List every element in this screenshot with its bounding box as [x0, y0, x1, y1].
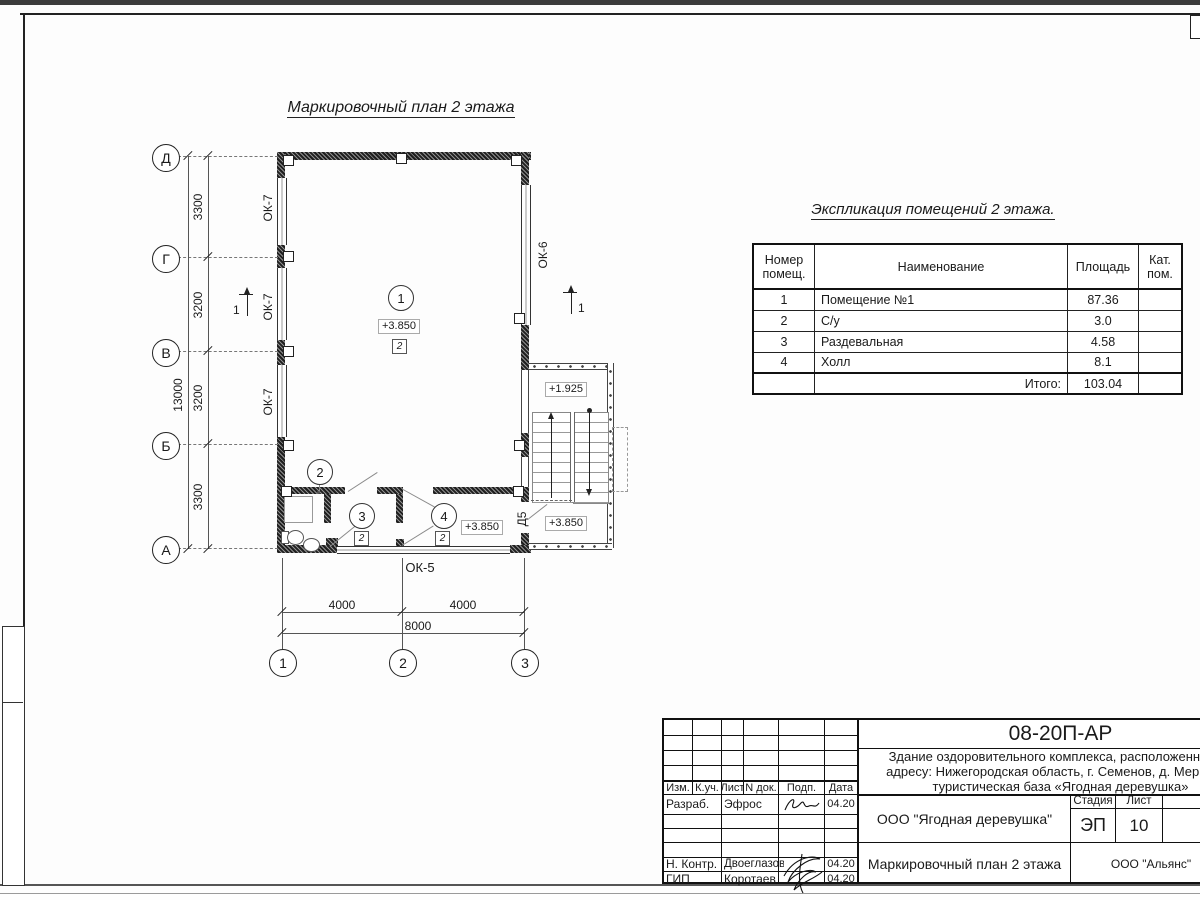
leader-line [403, 489, 435, 507]
partition [324, 494, 331, 523]
tb-grid-line [664, 794, 857, 795]
post-marker [511, 155, 522, 166]
post-marker [283, 251, 294, 262]
cell-room-area: 8.1 [1068, 352, 1139, 373]
stair-break-line [531, 500, 572, 501]
tb-stage-value: ЭП [1071, 809, 1115, 842]
axis-circle-b: Б [152, 432, 180, 460]
drawing-sheet: Маркировочный план 2 этажа [0, 0, 1200, 900]
tb-grid-line [859, 748, 1200, 749]
porch-wall-bottom [529, 543, 612, 550]
tb-description-line3: туристическая база «Ягодная деревушка» [933, 779, 1189, 794]
post-marker [514, 440, 525, 451]
tb-date-3: 04.20 [825, 872, 857, 886]
axis-circle-v: В [152, 339, 180, 367]
frame-bottom-line [0, 884, 1200, 886]
section-mark-tick [563, 292, 577, 293]
post-marker [514, 313, 525, 324]
tb-col-podp: Подп. [779, 782, 824, 794]
col-header-category: Кат. пом. [1139, 244, 1183, 289]
cell-room-name: Помещение №1 [815, 289, 1068, 310]
stair-arrow-down-shaft [589, 413, 590, 491]
col-header-area: Площадь [1068, 244, 1139, 289]
total-row: Итого: 103.04 [753, 373, 1182, 394]
cell-room-name: Холл [815, 352, 1068, 373]
window-label-ok7-2: ОК-7 [261, 277, 275, 337]
dim-value-13000: 13000 [171, 365, 185, 425]
cell-room-number: 3 [753, 331, 815, 352]
wall-type-mark: 2 [354, 531, 369, 546]
tb-grid-line [1162, 794, 1163, 842]
plan-title: Маркировочный план 2 этажа [251, 99, 551, 117]
tb-col-kuch: К.уч. [693, 782, 721, 794]
cell-room-name: С/у [815, 310, 1068, 331]
tb-name-efros: Эфрос [724, 795, 778, 813]
tb-grid-line [1115, 794, 1116, 842]
door-label-d5: Д5 [515, 489, 529, 549]
explication-table: Номер помещ. Наименование Площадь Кат. п… [752, 243, 1183, 395]
axis-circle-a: А [152, 536, 180, 564]
stair-arrow-up-head [548, 412, 554, 419]
dim-line-total-bottom [282, 633, 524, 634]
tb-grid-line [664, 735, 857, 736]
tb-col-data: Дата [825, 782, 857, 794]
signature-icon [780, 850, 826, 894]
tb-doc-number: 08-20П-АР [859, 720, 1200, 748]
tb-grid-line [664, 814, 857, 815]
dim-ext-line [282, 558, 283, 649]
dim-line-total-left [188, 156, 189, 549]
tb-grid-line [778, 720, 779, 884]
axis-circle-2: 2 [389, 649, 417, 677]
cell-room-category [1139, 331, 1183, 352]
landing-ghost-outline [612, 427, 628, 492]
explication-title: Экспликация помещений 2 этажа. [783, 201, 1083, 218]
tb-date-1: 04.20 [825, 795, 857, 813]
post-marker [283, 346, 294, 357]
leader-line [330, 526, 355, 547]
wall-type-mark: 2 [435, 531, 450, 546]
section-mark-number: 1 [578, 301, 585, 315]
cell-empty [1139, 373, 1183, 394]
room-2-leader-dot [317, 491, 320, 494]
floor-plan: Маркировочный план 2 этажа [0, 0, 700, 700]
partition [377, 487, 403, 494]
tb-sheet-header: Лист [1116, 794, 1162, 808]
tb-grid-line [664, 828, 857, 829]
post-marker [281, 486, 292, 497]
table-row: 2 С/у 3.0 [753, 310, 1182, 331]
tb-grid-line [743, 720, 744, 794]
dim-value-3200-2: 3200 [191, 368, 205, 428]
wall-right-thin [521, 370, 529, 433]
post-marker [513, 486, 524, 497]
table-row: 1 Помещение №1 87.36 [753, 289, 1182, 310]
title-block: Изм. К.уч. Лист N док. Подп. Дата Разраб… [662, 718, 1200, 884]
corner-box [1190, 15, 1200, 39]
cell-room-number: 2 [753, 310, 815, 331]
shower-tray [284, 496, 313, 523]
table-row: 3 Раздевальная 4.58 [753, 331, 1182, 352]
window-ok5 [337, 546, 510, 554]
section-mark-arrow [244, 287, 250, 294]
dim-value-3200-1: 3200 [191, 275, 205, 335]
tb-main-divider [857, 720, 859, 884]
axis-line [178, 156, 278, 157]
col-header-name: Наименование [815, 244, 1068, 289]
axis-circle-1: 1 [269, 649, 297, 677]
stair-arrow-down-head [586, 489, 592, 496]
cell-room-number: 4 [753, 352, 815, 373]
tb-role-nkontr: Н. Контр. [666, 857, 724, 871]
cell-room-area: 3.0 [1068, 310, 1139, 331]
leader-line [348, 472, 378, 492]
post-marker [283, 440, 294, 451]
tb-grid-line [664, 857, 857, 858]
room-circle-1: 1 [388, 285, 414, 311]
axis-line [178, 257, 278, 258]
dim-value-3300-2: 3300 [191, 467, 205, 527]
stair-arrow-up-shaft [551, 419, 552, 498]
elevation-landing-top: +1.925 [545, 382, 587, 397]
sheet-edge-line [0, 893, 1200, 894]
explication-header-row: Номер помещ. Наименование Площадь Кат. п… [753, 244, 1182, 289]
room-circle-4: 4 [431, 503, 457, 529]
window-ok7-3 [277, 365, 287, 437]
axis-line [178, 444, 278, 445]
dim-value-8000: 8000 [388, 619, 448, 633]
tb-grid-line [664, 765, 857, 766]
tb-description-line1: Здание оздоровительного комплекса, распо… [889, 749, 1200, 764]
dim-line-segments-left [208, 156, 209, 549]
axis-circle-d: Д [152, 144, 180, 172]
tb-role-razrab: Разраб. [666, 795, 720, 813]
tb-grid-line [692, 720, 693, 794]
elevation-landing-bottom: +3.850 [545, 516, 587, 531]
tb-stage-header: Стадия [1071, 794, 1115, 808]
axis-circle-3: 3 [511, 649, 539, 677]
tb-grid-line [664, 871, 857, 872]
partition [396, 494, 403, 523]
partition [283, 487, 345, 494]
stair-divider [570, 412, 575, 502]
tb-grid-line [664, 750, 857, 751]
dim-value-4000-1: 4000 [312, 598, 372, 612]
tb-project-description: Здание оздоровительного комплекса, распо… [859, 749, 1200, 794]
cell-room-area: 4.58 [1068, 331, 1139, 352]
tb-grid-line [664, 842, 857, 843]
window-ok7-2 [277, 268, 287, 340]
total-value: 103.04 [1068, 373, 1139, 394]
window-label-ok7-1: ОК-7 [261, 178, 275, 238]
dim-value-4000-2: 4000 [433, 598, 493, 612]
tb-date-2: 04.20 [825, 857, 857, 871]
tb-name-korotaev: Коротаев [724, 872, 782, 886]
room-circle-3: 3 [349, 503, 375, 529]
section-mark-number: 1 [233, 303, 240, 317]
post-marker [283, 155, 294, 166]
window-ok7-1 [277, 178, 287, 245]
total-label: Итого: [815, 373, 1068, 394]
tb-grid-line [664, 780, 857, 782]
tb-grid-line [859, 842, 1200, 843]
tb-grid-line [721, 720, 722, 884]
porch-wall-top [529, 363, 612, 370]
dim-ext-line [524, 558, 525, 649]
elevation-hall: +3.850 [461, 520, 503, 535]
tb-col-ndok: N док. [744, 782, 778, 794]
plan-title-text: Маркировочный план 2 этажа [287, 99, 514, 118]
wall-right-seg [521, 152, 529, 185]
window-label-ok7-3: ОК-7 [261, 372, 275, 432]
signature-icon [782, 796, 822, 814]
cell-room-number: 1 [753, 289, 815, 310]
stair-flight-up [532, 412, 573, 503]
col-header-room-number: Номер помещ. [753, 244, 815, 289]
toilet-bowl [287, 530, 304, 545]
axis-line [178, 548, 278, 549]
tb-contractor: ООО "Альянс" [1071, 843, 1200, 884]
section-mark-arrow [568, 285, 574, 292]
window-label-ok5: ОК-5 [390, 560, 450, 575]
tb-org-name: ООО "Ягодная деревушка" [859, 796, 1070, 842]
tb-grid-line [859, 794, 1200, 796]
axis-circle-g: Г [152, 245, 180, 273]
tb-col-list: Лист [722, 782, 743, 794]
section-mark-shaft [247, 293, 248, 316]
tb-col-izm: Изм. [664, 782, 692, 794]
cell-room-category [1139, 289, 1183, 310]
cell-room-name: Раздевальная [815, 331, 1068, 352]
wall-right-thin [521, 457, 529, 487]
explication-title-text: Экспликация помещений 2 этажа. [811, 201, 1054, 220]
tb-sheet-number: 10 [1116, 809, 1162, 842]
tb-grid-line [1070, 808, 1200, 809]
tb-description-line2: адресу: Нижегородская область, г. Семено… [886, 764, 1200, 779]
room-circle-2: 2 [307, 459, 333, 485]
cell-room-category [1139, 310, 1183, 331]
binding-margin-divider [2, 702, 23, 703]
window-ok6 [521, 185, 531, 325]
tb-name-dvoeglazov: Двоеглазов [724, 857, 784, 871]
post-marker [396, 153, 407, 164]
partition [433, 487, 521, 494]
wall-type-mark: 2 [392, 339, 407, 354]
section-mark-tick [239, 294, 253, 295]
tb-role-gip: ГИП [666, 872, 720, 886]
cell-room-area: 87.36 [1068, 289, 1139, 310]
tb-drawing-title: Маркировочный план 2 этажа [859, 843, 1070, 884]
table-row: 4 Холл 8.1 [753, 352, 1182, 373]
cell-empty [753, 373, 815, 394]
dim-line-segments-bottom [282, 612, 524, 613]
wall-right-seg [521, 325, 529, 370]
dim-value-3300-1: 3300 [191, 177, 205, 237]
leader-line [402, 525, 434, 545]
section-mark-shaft [571, 291, 572, 314]
window-label-ok6: ОК-6 [536, 225, 550, 285]
section-mark-right: 1 [556, 283, 596, 318]
cell-room-category [1139, 352, 1183, 373]
elevation-room-1: +3.850 [378, 319, 420, 334]
sink [303, 538, 320, 552]
axis-line [178, 351, 278, 352]
